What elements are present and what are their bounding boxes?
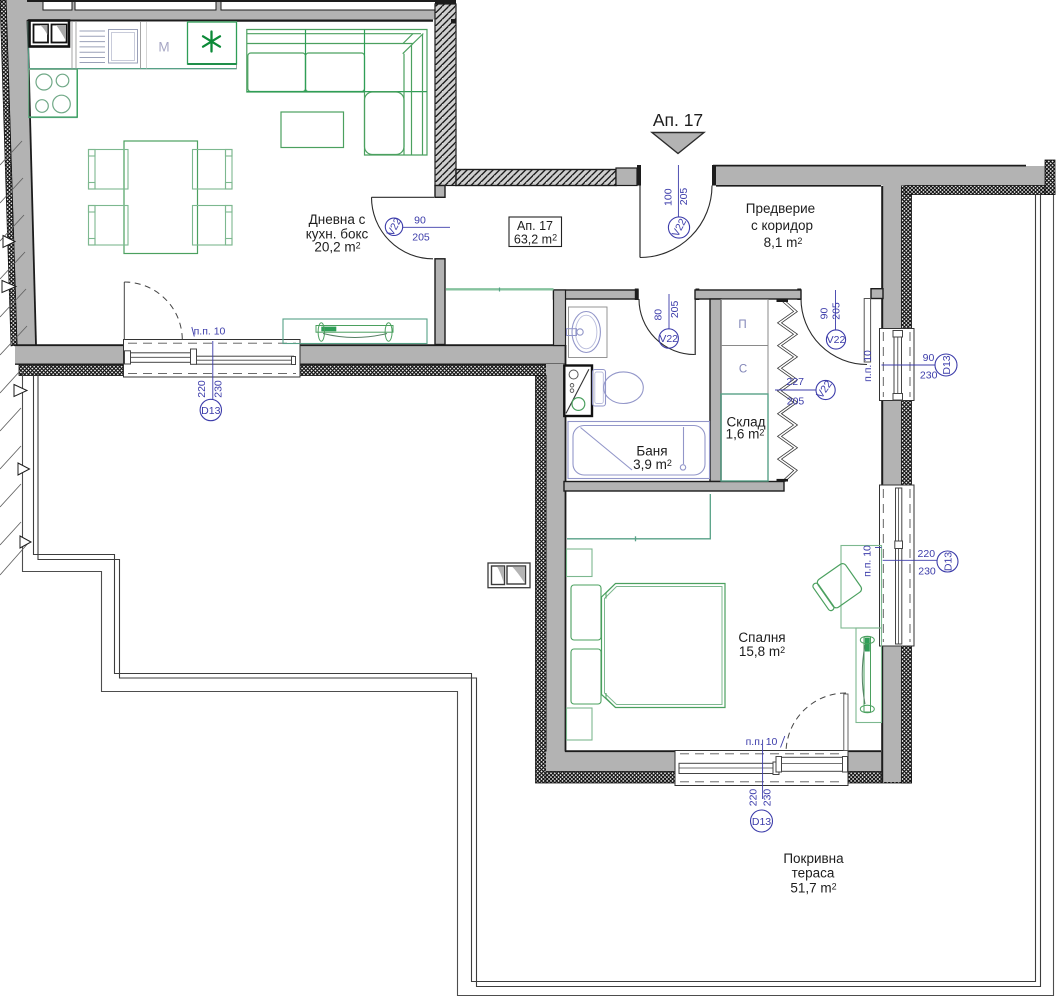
- svg-text:V22: V22: [659, 333, 678, 345]
- svg-text:3,9 m2: 3,9 m2: [633, 457, 672, 472]
- svg-text:D13: D13: [752, 816, 771, 828]
- svg-text:205: 205: [787, 396, 805, 408]
- svg-text:M: M: [158, 40, 169, 55]
- svg-text:205: 205: [678, 188, 690, 206]
- svg-text:Спалня: Спалня: [738, 630, 785, 645]
- svg-text:230: 230: [920, 370, 938, 382]
- svg-text:63,2 m2: 63,2 m2: [514, 233, 557, 247]
- svg-text:90: 90: [923, 352, 935, 364]
- svg-text:D13: D13: [941, 355, 953, 374]
- svg-text:Предверие: Предверие: [746, 201, 815, 216]
- svg-text:Покривна: Покривна: [783, 851, 844, 866]
- svg-text:1,6 m2: 1,6 m2: [726, 427, 765, 442]
- svg-text:с коридор: с коридор: [751, 218, 813, 233]
- svg-text:230: 230: [213, 380, 225, 398]
- svg-text:220: 220: [748, 789, 760, 807]
- svg-text:8,1 m2: 8,1 m2: [764, 235, 803, 250]
- svg-text:20,2 m2: 20,2 m2: [314, 240, 360, 255]
- svg-text:Ап. 17: Ап. 17: [653, 110, 703, 130]
- svg-text:230: 230: [918, 566, 936, 578]
- svg-text:227: 227: [786, 376, 804, 388]
- svg-text:Ап. 17: Ап. 17: [517, 219, 553, 233]
- svg-text:100: 100: [662, 188, 674, 206]
- svg-text:п.п. 10: п.п. 10: [194, 326, 226, 338]
- svg-text:230: 230: [762, 789, 774, 807]
- svg-text:205: 205: [831, 302, 843, 320]
- svg-text:П: П: [738, 319, 746, 331]
- svg-text:п.п. 10: п.п. 10: [862, 545, 874, 577]
- svg-text:90: 90: [414, 215, 426, 227]
- svg-text:51,7 m2: 51,7 m2: [790, 881, 836, 896]
- svg-text:D13: D13: [943, 552, 955, 571]
- svg-text:п.п. 10: п.п. 10: [746, 736, 778, 748]
- svg-text:тераса: тераса: [792, 866, 835, 881]
- svg-text:15,8 m2: 15,8 m2: [739, 644, 785, 659]
- svg-text:220: 220: [196, 380, 208, 398]
- svg-text:205: 205: [669, 300, 681, 318]
- svg-text:С: С: [739, 364, 747, 376]
- svg-text:80: 80: [653, 309, 665, 321]
- svg-text:90: 90: [819, 308, 831, 320]
- svg-text:205: 205: [412, 232, 430, 244]
- svg-text:Дневна с: Дневна с: [309, 212, 366, 227]
- svg-text:220: 220: [918, 548, 936, 560]
- svg-text:V22: V22: [827, 334, 846, 346]
- svg-text:п.п. 10: п.п. 10: [862, 350, 874, 382]
- svg-text:D13: D13: [201, 405, 220, 417]
